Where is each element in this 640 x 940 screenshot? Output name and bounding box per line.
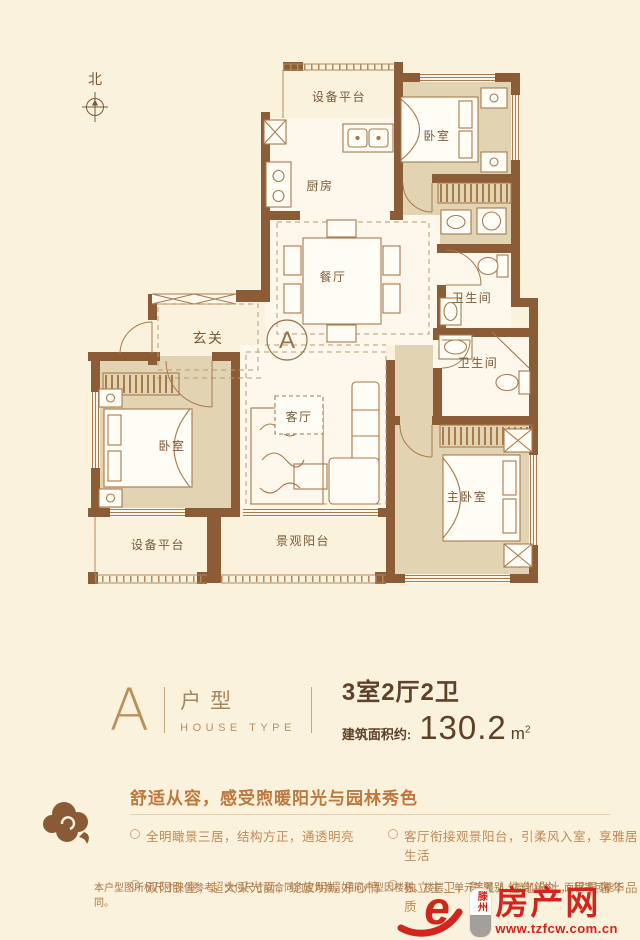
site-logo[interactable]: e 滕州 房产网 www.tzfcw.com.cn [397, 886, 618, 940]
type-summary: A 户型 HOUSE TYPE 3室2厅2卫 建筑面积约: 130.2 m2 [0, 672, 640, 747]
divider [164, 687, 165, 733]
site-url[interactable]: www.tzfcw.com.cn [495, 922, 618, 935]
e-swoosh-icon: e [397, 886, 469, 940]
pill-gray-block [470, 915, 491, 937]
divider-line [130, 814, 610, 815]
city-name: 滕州 [473, 891, 488, 913]
bullet-circle-icon [388, 829, 398, 839]
room-label-foyer: 玄关 [193, 330, 224, 346]
unit-marker-letter: A [279, 327, 295, 354]
room-label-equip-bottom: 设备平台 [131, 537, 185, 552]
area-label: 建筑面积约: [342, 724, 411, 743]
bullet-circle-icon [130, 829, 140, 839]
layout-spec: 3室2厅2卫 建筑面积约: 130.2 m2 [342, 672, 531, 747]
cloud-logo-icon [38, 794, 92, 848]
floorplan-poster: 北 A 设备平台 厨房 卧室 餐厅 玄关 卫生间 卫生间 客厅 卧室 主卧室 设… [0, 0, 640, 938]
feature-item: 客厅衔接观景阳台，引柔风入室，享雅居生活 [388, 826, 640, 864]
compass-icon: 北 [82, 71, 108, 122]
divider [311, 687, 312, 733]
room-label-equip-top: 设备平台 [312, 89, 366, 104]
area-line: 建筑面积约: 130.2 m2 [342, 709, 531, 747]
room-label-bedroom-left: 卧室 [158, 438, 185, 453]
city-pill: 滕州 [469, 888, 492, 938]
room-label-living: 客厅 [285, 409, 312, 424]
room-label-kitchen: 厨房 [306, 178, 333, 193]
type-label-en: HOUSE TYPE [180, 722, 296, 734]
features-headline: 舒适从容，感受煦暖阳光与园林秀色 [130, 784, 418, 809]
area-unit: m2 [511, 724, 531, 744]
room-label-dining: 餐厅 [319, 269, 346, 284]
feature-item: 全明瞰景三居，结构方正，通透明亮 [130, 826, 388, 864]
type-name: 户型 HOUSE TYPE [180, 685, 296, 734]
type-label-cn: 户型 [180, 685, 296, 715]
type-letter: A [109, 684, 149, 736]
site-name: 房产网 [495, 886, 618, 919]
room-label-bedroom-tr: 卧室 [423, 128, 450, 143]
room-label-master: 主卧室 [447, 489, 488, 504]
compass-north-label: 北 [88, 71, 102, 87]
area-value: 130.2 [419, 709, 507, 747]
room-label-bath-2: 卫生间 [458, 356, 499, 370]
room-count: 3室2厅2卫 [342, 672, 531, 707]
room-label-bath-1: 卫生间 [452, 291, 493, 305]
floor-plan: 北 A 设备平台 厨房 卧室 餐厅 玄关 卫生间 卫生间 客厅 卧室 主卧室 设… [0, 0, 640, 640]
svg-text:e: e [425, 886, 451, 934]
site-text: 房产网 www.tzfcw.com.cn [495, 886, 618, 935]
room-label-balcony: 景观阳台 [276, 533, 330, 548]
